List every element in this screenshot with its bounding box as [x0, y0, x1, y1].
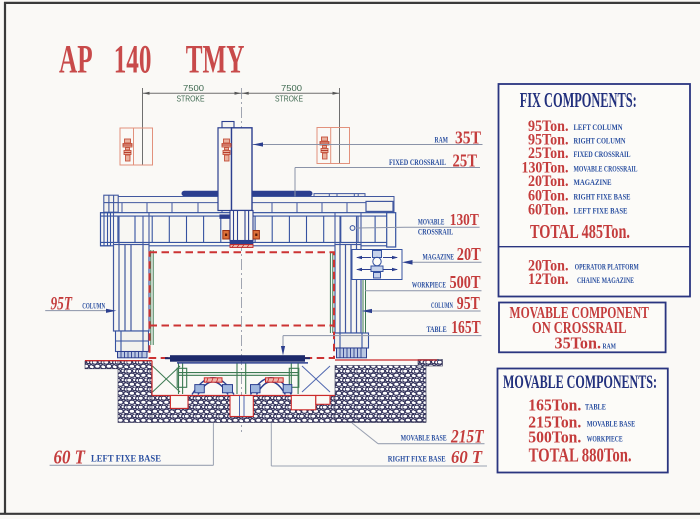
svg-text:LEFT COLUMN: LEFT COLUMN: [574, 123, 623, 132]
svg-text:CROSSRAIL: CROSSRAIL: [418, 228, 453, 237]
svg-text:MAGAZINE: MAGAZINE: [423, 253, 455, 262]
svg-text:RIGHT FIXE BASE: RIGHT FIXE BASE: [388, 454, 446, 464]
svg-text:LEFT FIXE BASE: LEFT FIXE BASE: [574, 207, 628, 216]
svg-text:95T: 95T: [51, 294, 73, 314]
svg-text:OPERATOR PLATFORM: OPERATOR PLATFORM: [575, 263, 639, 272]
svg-text:95T: 95T: [457, 293, 480, 313]
svg-text:TOTAL 485Ton.: TOTAL 485Ton.: [530, 222, 630, 243]
svg-text:FIX COMPONENTS:: FIX COMPONENTS:: [520, 88, 637, 112]
svg-text:20T: 20T: [457, 244, 481, 264]
svg-text:STROKE: STROKE: [177, 94, 205, 104]
svg-text:MOVABLE: MOVABLE: [418, 217, 445, 226]
svg-text:RAM: RAM: [435, 135, 449, 145]
svg-text:MOVABLE BASE: MOVABLE BASE: [401, 433, 447, 443]
svg-text:7500: 7500: [281, 83, 302, 93]
svg-text:FIXED CROSSRAIL: FIXED CROSSRAIL: [574, 150, 631, 159]
svg-text:CHAINE MAGAZINE: CHAINE MAGAZINE: [577, 276, 634, 285]
svg-text:FIXED CROSSRAIL: FIXED CROSSRAIL: [389, 158, 446, 167]
svg-text:TABLE: TABLE: [427, 325, 447, 334]
svg-text:LEFT FIXE BASE: LEFT FIXE BASE: [91, 454, 161, 464]
svg-text:WORKPIECE: WORKPIECE: [412, 280, 446, 289]
svg-text:60Ton.: 60Ton.: [528, 202, 569, 219]
svg-text:60 T: 60 T: [451, 447, 483, 467]
svg-text:12Ton.: 12Ton.: [528, 271, 569, 288]
svg-text:60 T: 60 T: [54, 448, 86, 469]
svg-text:MOVABLE BASE: MOVABLE BASE: [587, 419, 636, 429]
svg-text:RIGHT FIXE BASE: RIGHT FIXE BASE: [574, 193, 631, 202]
svg-text:MOVABLE CROSSRAIL: MOVABLE CROSSRAIL: [574, 164, 638, 173]
svg-text:TOTAL 880Ton.: TOTAL 880Ton.: [529, 446, 632, 467]
svg-text:COLUMN: COLUMN: [431, 301, 453, 310]
svg-text:500T: 500T: [450, 272, 481, 292]
svg-text:WORKPIECE: WORKPIECE: [587, 434, 623, 444]
svg-text:RAM: RAM: [603, 342, 617, 351]
svg-text:35Ton.: 35Ton.: [555, 334, 602, 353]
svg-text:7500: 7500: [183, 83, 204, 93]
svg-text:215T: 215T: [450, 427, 484, 448]
svg-text:TABLE: TABLE: [585, 402, 606, 412]
svg-text:MAGAZINE: MAGAZINE: [574, 178, 612, 187]
svg-text:STROKE: STROKE: [275, 94, 303, 104]
svg-text:MOVABLE COMPONENTS:: MOVABLE COMPONENTS:: [503, 372, 657, 393]
svg-text:130T: 130T: [450, 210, 479, 229]
svg-text:500Ton.: 500Ton.: [528, 428, 581, 447]
svg-text:RIGHT COLUMN: RIGHT COLUMN: [574, 137, 626, 146]
svg-text:COLUMN: COLUMN: [82, 302, 105, 311]
svg-text:25T: 25T: [453, 150, 478, 170]
svg-text:35T: 35T: [455, 127, 481, 147]
svg-text:165T: 165T: [451, 317, 481, 337]
